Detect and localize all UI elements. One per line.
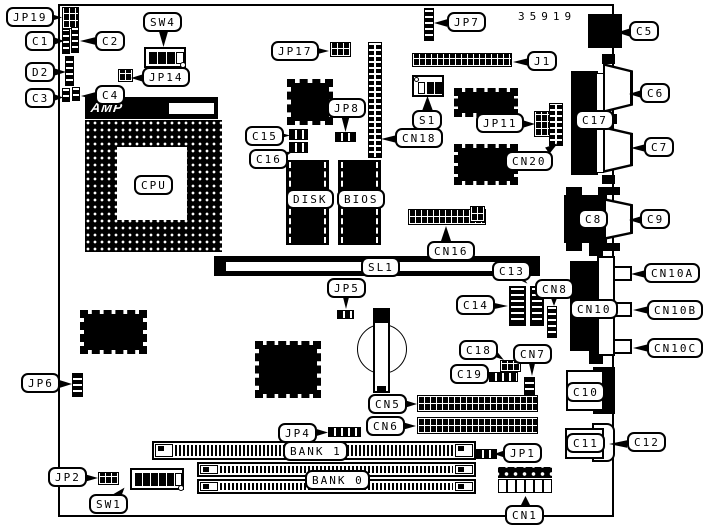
- cn18-connector: [368, 42, 382, 158]
- callout-c4: C4: [95, 85, 125, 105]
- callout-jp6: JP6: [21, 373, 60, 393]
- callout-c14: C14: [456, 295, 495, 315]
- c2-connector: [71, 27, 79, 53]
- motherboard-diagram: AMP: [0, 0, 705, 530]
- cn10c-pointer: [633, 343, 648, 353]
- callout-c13: C13: [492, 261, 531, 281]
- small-header: [470, 206, 485, 222]
- c8-tab-2: [598, 187, 620, 195]
- c6-dsub-connector: [603, 63, 633, 113]
- callout-cn10c: CN10C: [647, 338, 703, 358]
- cn6-connector: [417, 417, 538, 434]
- jp19-connector: [62, 7, 79, 29]
- c19-connector: [489, 372, 518, 382]
- s1-dip-switch: [412, 75, 444, 97]
- c5-keyboard-connector: [588, 14, 622, 48]
- callout-cn18: CN18: [395, 128, 443, 148]
- callout-jp11: JP11: [476, 113, 524, 133]
- chip-top-center: [287, 79, 333, 125]
- jp8-connector: [335, 132, 356, 142]
- callout-jp8: JP8: [327, 98, 366, 118]
- cn10b-pointer: [633, 305, 648, 315]
- callout-c3: C3: [25, 88, 55, 108]
- callout-sw4: SW4: [143, 12, 182, 32]
- callout-bios: BIOS: [337, 189, 385, 209]
- callout-sl1: SL1: [361, 257, 400, 277]
- callout-c17: C17: [575, 110, 614, 130]
- jp1-connector: [476, 449, 497, 459]
- callout-jp14: JP14: [142, 67, 190, 87]
- callout-bank0: BANK 0: [305, 470, 370, 490]
- callout-c18: C18: [459, 340, 498, 360]
- jp14-connector: [118, 69, 133, 82]
- c1-connector: [62, 29, 70, 54]
- callout-cn8: CN8: [535, 279, 574, 299]
- callout-c2: C2: [95, 31, 125, 51]
- cn10a-port: [613, 266, 632, 281]
- cn7-connector: [524, 377, 535, 395]
- callout-c11: C11: [566, 433, 605, 453]
- callout-jp7: JP7: [447, 12, 486, 32]
- callout-cn16: CN16: [427, 241, 475, 261]
- c3-connector: [62, 88, 70, 102]
- callout-cn20: CN20: [505, 151, 553, 171]
- callout-cpu: CPU: [134, 175, 173, 195]
- callout-j1: J1: [527, 51, 557, 71]
- callout-sw1: SW1: [89, 494, 128, 514]
- callout-c6: C6: [640, 83, 670, 103]
- sw1-dip-switch: [130, 468, 184, 490]
- callout-c8: C8: [578, 209, 608, 229]
- callout-cn10a: CN10A: [644, 263, 700, 283]
- c15-connector: [289, 129, 308, 140]
- c7-pointer: [631, 143, 645, 153]
- cn10c-port: [613, 339, 632, 354]
- sw1-dot: [178, 485, 184, 491]
- callout-jp19: JP19: [6, 7, 54, 27]
- callout-bank1: BANK 1: [283, 441, 348, 461]
- callout-c5: C5: [629, 21, 659, 41]
- callout-disk: DISK: [286, 189, 334, 209]
- callout-s1: S1: [412, 110, 442, 130]
- cn1-power-connector: [498, 466, 554, 496]
- callout-cn10: CN10: [570, 299, 618, 319]
- callout-jp5: JP5: [327, 278, 366, 298]
- battery-clip: [373, 308, 390, 393]
- c14-connector-a: [509, 286, 526, 326]
- callout-jp1: JP1: [503, 443, 542, 463]
- jp6-connector: [72, 373, 83, 397]
- callout-cn7: CN7: [513, 344, 552, 364]
- c8-tab-3: [566, 243, 582, 251]
- jp5-connector: [337, 310, 354, 319]
- callout-jp17: JP17: [271, 41, 319, 61]
- cn20-connector: [549, 103, 563, 146]
- chip-left-lower: [80, 310, 147, 354]
- c16-connector: [289, 142, 308, 153]
- j1-connector: [412, 53, 512, 67]
- jp17-connector: [330, 42, 351, 57]
- amp-bar-window: [169, 103, 214, 114]
- cn8-connector: [547, 306, 557, 338]
- callout-cn10b: CN10B: [647, 300, 703, 320]
- jp7-connector: [424, 8, 434, 41]
- callout-c15: C15: [245, 126, 284, 146]
- chip-center-lower: [255, 341, 321, 398]
- callout-c10: C10: [566, 382, 605, 402]
- callout-jp4: JP4: [278, 423, 317, 443]
- callout-c1: C1: [25, 31, 55, 51]
- board-number: 35919: [518, 10, 576, 23]
- callout-c19: C19: [450, 364, 489, 384]
- callout-cn1: CN1: [505, 505, 544, 525]
- jp2-connector: [98, 472, 119, 485]
- c7-dsub-connector: [603, 126, 633, 173]
- callout-d2: D2: [25, 62, 55, 82]
- callout-cn5: CN5: [368, 394, 407, 414]
- c8-tab-1: [566, 187, 582, 195]
- cn10a-pointer: [631, 269, 645, 279]
- callout-c9: C9: [640, 209, 670, 229]
- cn10-tab-top: [589, 243, 603, 256]
- callout-cn6: CN6: [366, 416, 405, 436]
- c4-connector: [72, 87, 80, 101]
- c9-dsub-connector: [604, 198, 633, 240]
- callout-c7: C7: [644, 137, 674, 157]
- cn5-connector: [417, 395, 538, 412]
- bracket-tab-3: [602, 175, 615, 184]
- bracket-tab-1: [602, 54, 615, 64]
- callout-c16: C16: [249, 149, 288, 169]
- callout-c12: C12: [627, 432, 666, 452]
- jp4-connector: [328, 427, 361, 437]
- callout-jp2: JP2: [48, 467, 87, 487]
- d2-component: [65, 56, 74, 86]
